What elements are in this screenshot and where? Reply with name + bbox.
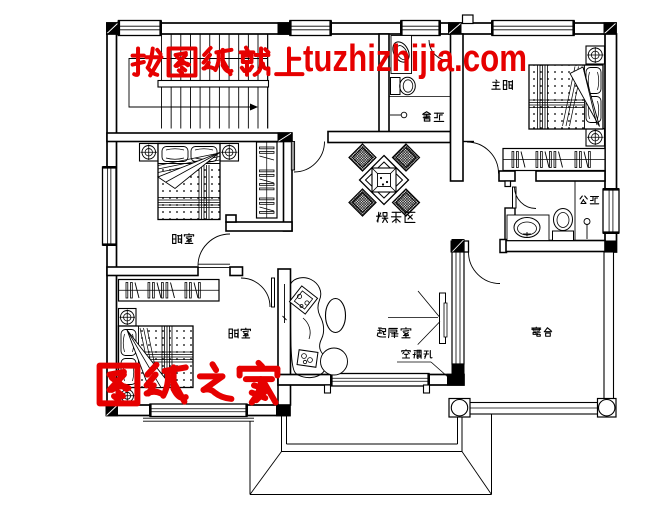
svg-text:tuzhizhijia.com: tuzhizhijia.com xyxy=(303,38,527,80)
